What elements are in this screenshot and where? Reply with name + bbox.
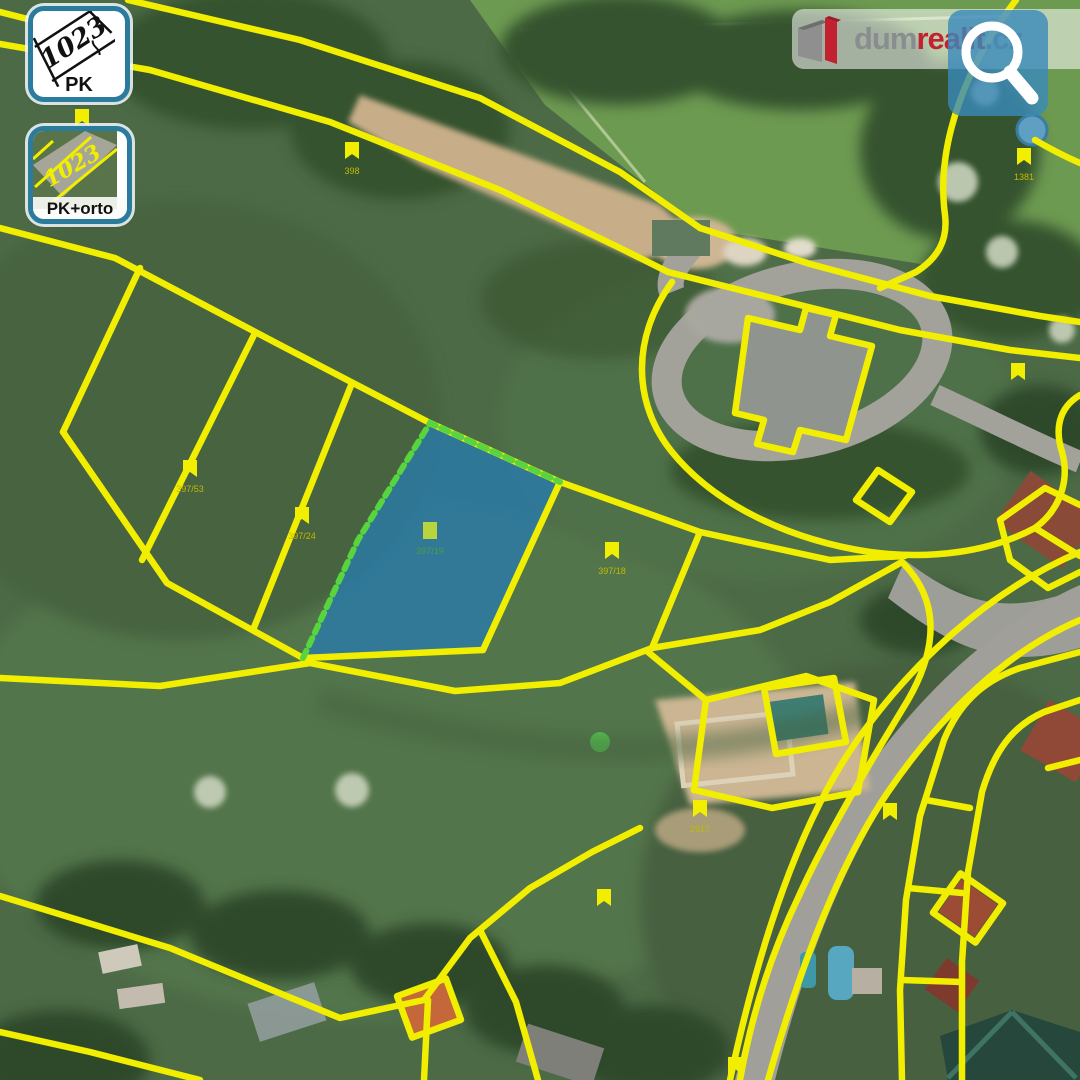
magnifier-zoom-control[interactable] [948, 10, 1048, 116]
parcel-number-label: 397/53 [176, 484, 204, 494]
magnifier-icon [948, 10, 1048, 116]
aerial-cadastral-map[interactable]: 398397/53397/24397/19397/1829171381 [0, 0, 1080, 1080]
terrain-layer [0, 0, 1080, 1080]
map-mode-pk-orto-button[interactable]: 1023 PK+orto [28, 126, 132, 224]
pk-orto-button-label: PK+orto [33, 197, 127, 219]
parcel-number-label: 2917 [690, 824, 710, 834]
parcel-number-label: 398 [344, 166, 359, 176]
parcel-number-label: 397/19 [416, 546, 444, 556]
map-mode-pk-button[interactable]: 1023 PK [28, 6, 130, 102]
map-viewer[interactable]: 398397/53397/24397/19397/1829171381 1023… [0, 0, 1080, 1080]
parcel-number-label: 397/18 [598, 566, 626, 576]
parcel-number-label: 1381 [1014, 172, 1034, 182]
pk-button-label: PK [33, 75, 125, 95]
dumrealit-building-icon [792, 12, 846, 66]
parcel-number-label: 397/24 [288, 531, 316, 541]
